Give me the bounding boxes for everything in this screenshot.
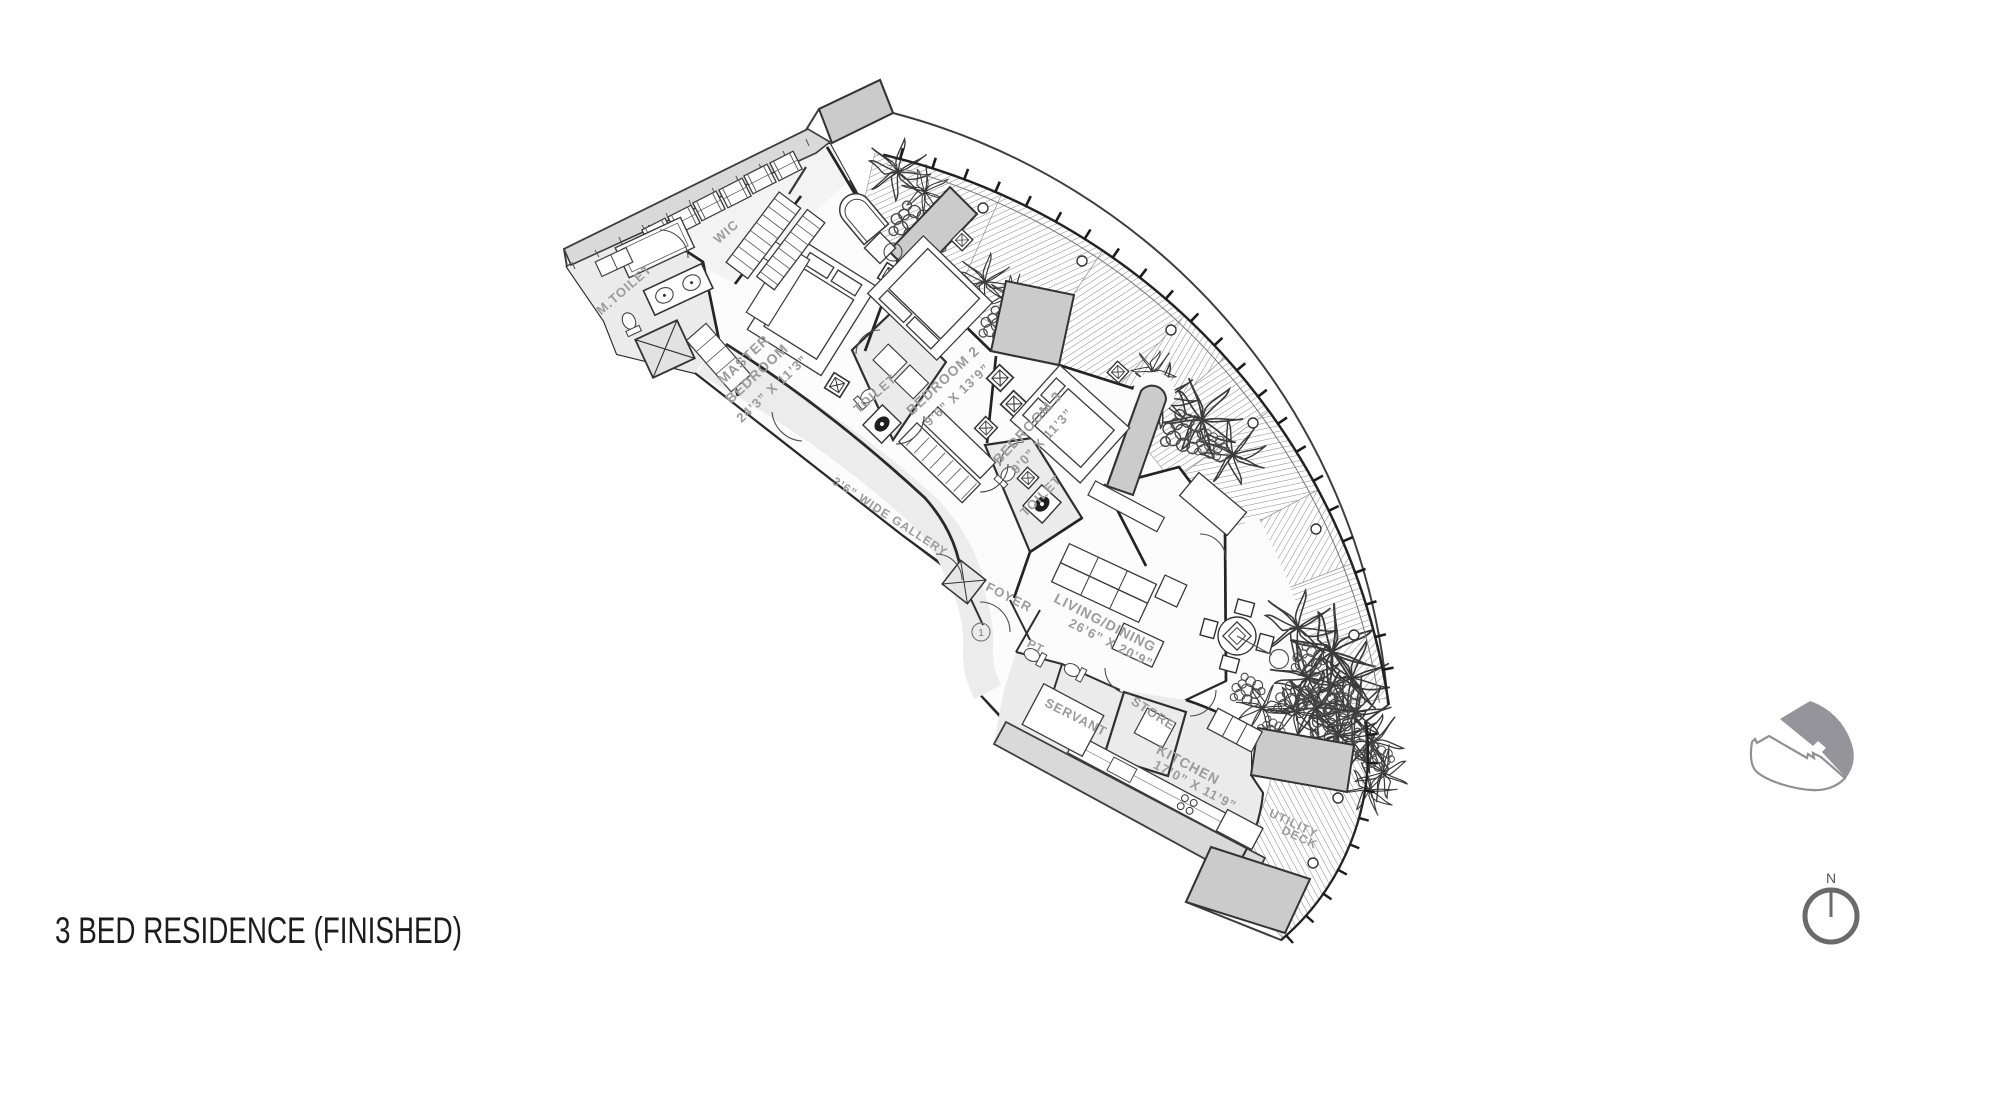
svg-text:N: N [1826,870,1836,886]
svg-text:3 BED RESIDENCE (FINISHED): 3 BED RESIDENCE (FINISHED) [55,910,462,951]
svg-text:1: 1 [978,628,984,639]
